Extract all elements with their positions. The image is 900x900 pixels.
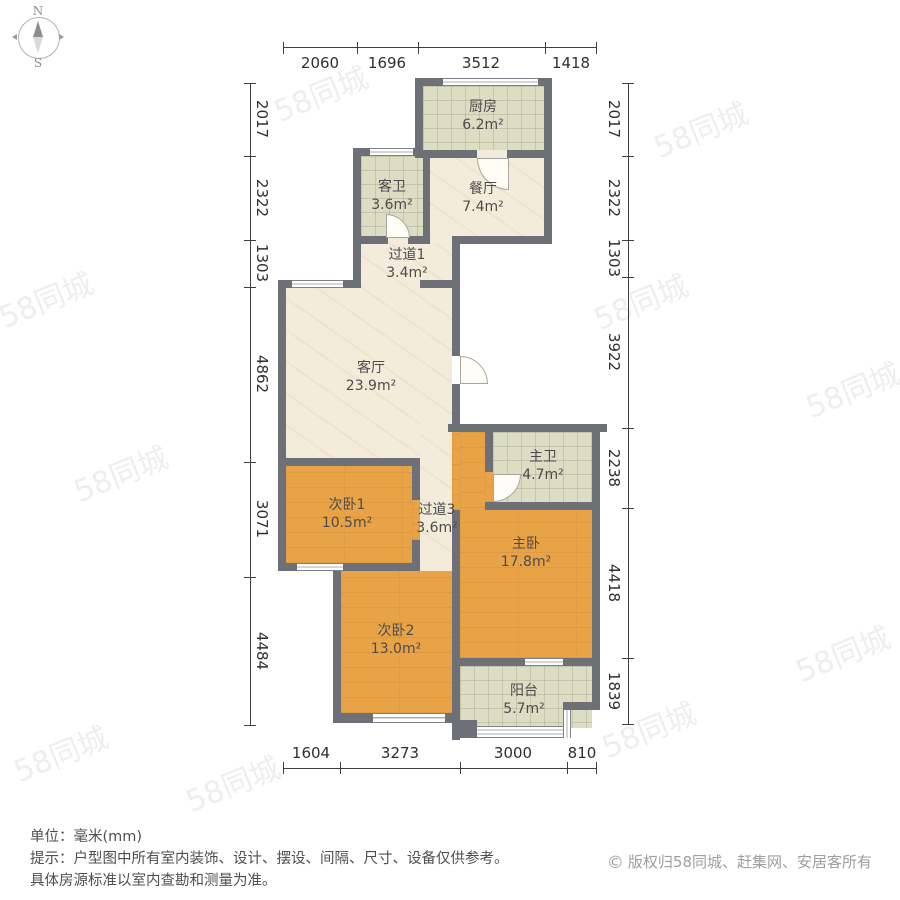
watermark: 58同城	[0, 259, 99, 337]
wall	[485, 502, 600, 510]
compass-south-label: S	[12, 56, 64, 70]
dimension-line-right	[628, 83, 629, 725]
dimension-value: 3071	[253, 500, 271, 538]
footer-copyright: ©版权归58同城、赶集网、安居客所有	[607, 851, 872, 873]
room-area: 3.6m²	[371, 196, 413, 214]
dimension-value: 2017	[605, 100, 623, 138]
window-bedroom1	[297, 563, 343, 571]
doorway-master-bath	[485, 472, 493, 502]
copyright-icon: ©	[607, 853, 624, 873]
room-label-dining: 餐厅 7.4m²	[462, 180, 504, 216]
dimension-tick	[545, 42, 546, 54]
compass-needle-icon	[33, 37, 43, 53]
dimension-tick	[622, 240, 634, 241]
dimension-tick	[244, 156, 256, 157]
dimension-value: 1604	[292, 744, 330, 762]
dimension-value: 1696	[368, 54, 406, 72]
floor-hallway3	[420, 424, 452, 563]
room-label-bedroom1: 次卧1 10.5m²	[322, 496, 372, 532]
footer-unit-line: 单位：毫米(mm)	[30, 825, 142, 846]
room-area: 3.6m²	[416, 519, 458, 537]
room-area: 23.9m²	[346, 377, 396, 395]
footer-tip-line2: 具体房源标准以室内查勘和测量为准。	[30, 869, 277, 890]
room-name: 餐厅	[462, 180, 504, 198]
doorway-kitchen-dining	[477, 150, 507, 158]
dimension-tick	[244, 462, 256, 463]
dimension-value: 2322	[253, 179, 271, 217]
room-label-living: 客厅 23.9m²	[346, 359, 396, 395]
doorway-dining-hallway1	[430, 236, 452, 244]
wall	[278, 458, 420, 466]
dimension-value: 1303	[253, 244, 271, 282]
room-label-guest-bath: 客卫 3.6m²	[371, 178, 413, 214]
dimension-value: 4484	[253, 632, 271, 670]
dimension-tick	[596, 42, 597, 54]
dimension-tick	[244, 577, 256, 578]
window-living	[292, 280, 343, 288]
dimension-tick	[244, 287, 256, 288]
dimension-value: 1303	[605, 239, 623, 277]
wall	[408, 236, 430, 244]
wall	[353, 148, 361, 288]
dimension-tick	[567, 762, 568, 774]
room-name: 次卧2	[371, 622, 421, 640]
dimension-value: 3273	[381, 744, 419, 762]
window-balcony-front	[477, 726, 563, 738]
dimension-tick	[283, 762, 284, 774]
window-bedroom2	[373, 713, 445, 723]
room-label-balcony: 阳台 5.7m²	[503, 682, 545, 718]
dimension-value: 4418	[605, 564, 623, 602]
window-kitchen	[443, 78, 538, 86]
room-name: 客卫	[371, 178, 413, 196]
dimension-tick	[622, 156, 634, 157]
dimension-tick	[418, 42, 419, 54]
room-area: 7.4m²	[462, 198, 504, 216]
compass-west-arrow-icon	[12, 34, 17, 40]
wall	[278, 280, 286, 571]
room-area: 6.2m²	[462, 116, 504, 134]
dimension-tick	[357, 42, 358, 54]
dimension-tick	[622, 428, 634, 429]
room-name: 过道3	[416, 501, 458, 519]
dimension-tick	[622, 724, 634, 725]
wall	[507, 150, 544, 158]
dimension-value: 4862	[253, 355, 271, 393]
room-name: 过道1	[386, 246, 428, 264]
dimension-tick	[622, 508, 634, 509]
dimension-tick	[622, 658, 634, 659]
room-name: 主卫	[522, 448, 564, 466]
room-name: 厨房	[462, 98, 504, 116]
window-master-bedroom	[525, 658, 563, 666]
wall	[452, 384, 460, 432]
watermark: 58同城	[788, 613, 896, 691]
room-area: 13.0m²	[371, 640, 421, 658]
room-name: 客厅	[346, 359, 396, 377]
dimension-line-left	[250, 83, 251, 726]
door-entry	[460, 356, 488, 384]
room-label-hallway3: 过道3 3.6m²	[416, 501, 458, 537]
dimension-tick	[244, 240, 256, 241]
room-label-master-bath: 主卫 4.7m²	[522, 448, 564, 484]
watermark: 58同城	[66, 433, 174, 511]
dimension-tick	[244, 83, 256, 84]
room-label-kitchen: 厨房 6.2m²	[462, 98, 504, 134]
wall	[485, 432, 493, 472]
compass-needle-icon	[33, 21, 43, 37]
watermark: 58同城	[178, 743, 286, 821]
dimension-value: 2238	[605, 449, 623, 487]
wall	[333, 563, 341, 723]
window-guest-bath	[370, 148, 413, 156]
wall	[452, 510, 460, 740]
dimension-value: 3000	[494, 744, 532, 762]
footer-tip-line1: 提示：户型图中所有室内装饰、设计、摆设、间隔、尺寸、设备仅供参考。	[30, 847, 509, 868]
doorway-bedroom2	[420, 563, 452, 571]
dimension-value: 2017	[253, 100, 271, 138]
dimension-value: 2060	[301, 54, 339, 72]
watermark: 58同城	[6, 713, 114, 791]
copyright-text: 版权归58同城、赶集网、安居客所有	[628, 853, 872, 871]
compass-north-label: N	[12, 4, 64, 18]
wall	[452, 236, 552, 244]
dimension-tick	[596, 762, 597, 774]
watermark: 58同城	[798, 349, 900, 427]
dimension-tick	[283, 42, 284, 54]
floorplan-page: 58同城 58同城 58同城 58同城 58同城 58同城 58同城 58同城 …	[0, 0, 900, 900]
room-name: 阳台	[503, 682, 545, 700]
room-label-hallway1: 过道1 3.4m²	[386, 246, 428, 282]
doorway-master-bedroom	[452, 432, 460, 510]
room-area: 3.4m²	[386, 264, 428, 282]
dimension-value: 3922	[605, 333, 623, 371]
room-label-bedroom2: 次卧2 13.0m²	[371, 622, 421, 658]
dimension-line-bottom	[283, 768, 597, 769]
room-area: 4.7m²	[522, 466, 564, 484]
compass: N S	[12, 4, 64, 70]
window-balcony-side	[563, 710, 571, 738]
dimension-tick	[622, 83, 634, 84]
wall	[412, 540, 420, 571]
wall	[448, 424, 607, 432]
dimension-tick	[340, 762, 341, 774]
room-area: 5.7m²	[503, 700, 545, 718]
dimension-value: 2322	[605, 179, 623, 217]
compass-east-arrow-icon	[59, 34, 64, 40]
wall	[592, 424, 600, 710]
watermark: 58同城	[646, 89, 754, 167]
dimension-tick	[244, 725, 256, 726]
dimension-line-top	[283, 47, 597, 48]
wall	[423, 156, 430, 236]
room-label-master-bedroom: 主卧 17.8m²	[501, 535, 551, 571]
dimension-tick	[460, 762, 461, 774]
wall	[452, 244, 460, 356]
room-name: 次卧1	[322, 496, 372, 514]
dimension-value: 3512	[462, 54, 500, 72]
dimension-value: 1839	[605, 672, 623, 710]
room-name: 主卧	[501, 535, 551, 553]
watermark: 58同城	[586, 261, 694, 339]
wall	[412, 466, 420, 500]
wall	[415, 78, 423, 150]
dimension-value: 810	[568, 744, 597, 762]
room-area: 17.8m²	[501, 553, 551, 571]
wall	[544, 78, 552, 244]
room-area: 10.5m²	[322, 514, 372, 532]
dimension-tick	[622, 277, 634, 278]
dimension-value: 1418	[552, 54, 590, 72]
